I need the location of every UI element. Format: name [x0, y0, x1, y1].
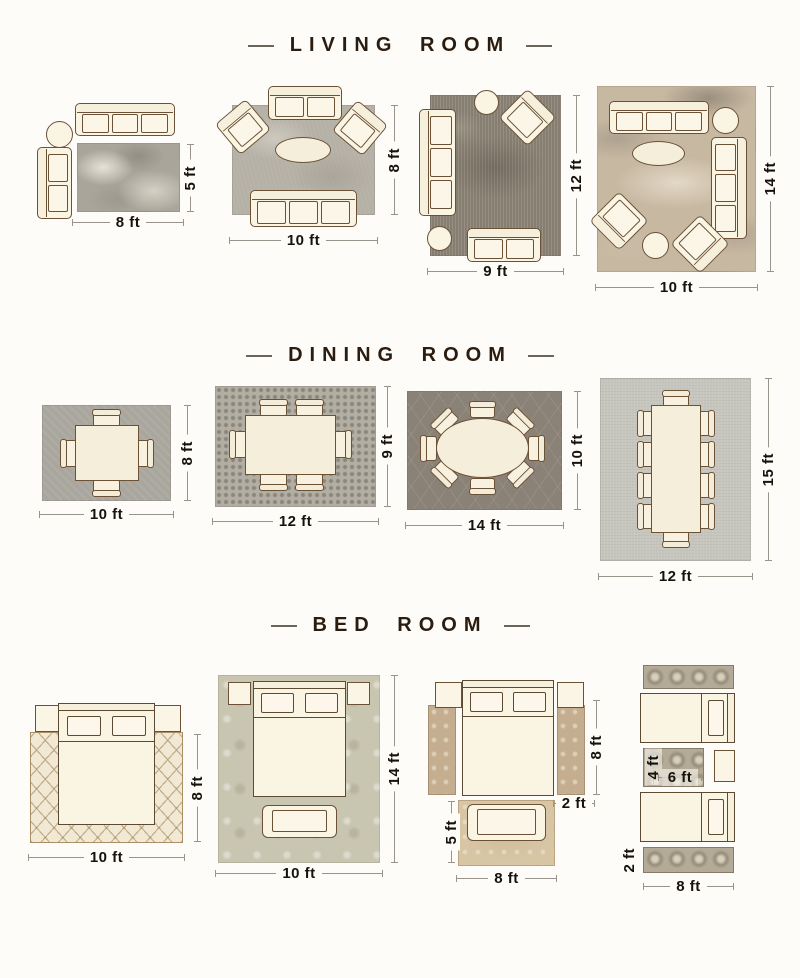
bed: [58, 703, 155, 825]
bed-room-layout-4: 4 ft 6 ft 2 ft 8 ft: [618, 656, 783, 904]
section-title-text: BED ROOM: [313, 614, 488, 637]
sofa: [419, 109, 456, 216]
runner-height-dimension: 2 ft: [620, 845, 638, 875]
bench: [467, 804, 546, 841]
dining-chair: [93, 479, 120, 495]
rug-height-label: 5 ft: [182, 160, 199, 197]
title-dash: [526, 45, 552, 47]
dining-table: [75, 425, 139, 481]
runner-height-label: 2 ft: [621, 842, 638, 879]
bench: [262, 805, 337, 838]
rug-size-guide: LIVING ROOM 8 ft 5 ft 10 ft 8 ft 9 ft 12…: [0, 0, 800, 978]
rug-width-label: 10 ft: [654, 279, 699, 296]
rug-height-label: 8 ft: [386, 142, 403, 179]
rug-width-dimension: 10 ft: [229, 232, 378, 248]
living-room-layout-4: 10 ft 14 ft: [595, 80, 780, 310]
rug-height-dimension: 14 ft: [761, 86, 779, 272]
rug-height-dimension: 8 ft: [178, 405, 196, 501]
runner-rug: [643, 665, 734, 689]
foot-rug-height-label: 5 ft: [443, 814, 460, 851]
loveseat: [37, 147, 72, 219]
rug-width-dimension: 12 ft: [212, 513, 379, 529]
living-room-layout-1: 8 ft 5 ft: [30, 95, 205, 245]
dining-room-layout-3: 14 ft 10 ft: [405, 385, 580, 535]
rug-height-label: 15 ft: [760, 447, 777, 492]
dining-table: [436, 418, 529, 478]
runner-rug: [643, 847, 734, 873]
sofa: [609, 101, 709, 134]
rug-width-label: 10 ft: [84, 506, 129, 523]
rug-width-label: 8 ft: [110, 214, 147, 231]
dining-room-layout-4: 12 ft 15 ft: [598, 375, 780, 590]
side-table: [427, 226, 452, 251]
title-dash: [504, 625, 530, 627]
twin-bed: [640, 792, 735, 842]
coffee-table: [275, 137, 331, 163]
dining-chair: [470, 403, 495, 418]
dining-chair: [334, 431, 350, 458]
dining-chair: [663, 531, 689, 546]
foot-rug-width-label: 8 ft: [488, 870, 525, 887]
rug-height-label: 12 ft: [568, 153, 585, 198]
section-title-living-room: LIVING ROOM: [0, 34, 800, 57]
bed: [253, 681, 346, 797]
rug-width-label: 12 ft: [653, 568, 698, 585]
nightstand: [347, 682, 370, 705]
rug-width-dimension: 10 ft: [28, 849, 185, 865]
rug-height-label: 10 ft: [569, 428, 586, 473]
rug-height-label: 8 ft: [189, 770, 206, 807]
nightstand: [154, 705, 181, 732]
dining-room-layout-1: 10 ft 8 ft: [35, 398, 200, 523]
side-table: [642, 232, 669, 259]
rug-height-label: 9 ft: [379, 428, 396, 465]
rug-height-label: 14 ft: [762, 156, 779, 201]
sofa: [250, 190, 357, 227]
dining-room-layout-2: 12 ft 9 ft: [210, 382, 390, 532]
bed-room-layout-2: 10 ft 14 ft: [212, 668, 394, 880]
rug-width-dimension: 10 ft: [215, 865, 383, 881]
dining-chair: [470, 478, 495, 493]
dining-chair: [528, 436, 543, 461]
living-room-layout-3: 9 ft 12 ft: [415, 85, 585, 290]
bed-room-layout-1: 10 ft 8 ft: [28, 696, 203, 871]
loveseat: [268, 86, 342, 120]
side-table: [46, 121, 73, 148]
side-table: [712, 107, 739, 134]
runner-rug: [557, 705, 585, 795]
rug-width-label: 14 ft: [462, 517, 507, 534]
runner-width-dimension: 8 ft: [643, 878, 734, 894]
rug-height-dimension: 9 ft: [378, 386, 396, 507]
rug-width-label: 12 ft: [273, 513, 318, 530]
section-title-text: DINING ROOM: [288, 344, 512, 367]
rug-width-label: 10 ft: [84, 849, 129, 866]
title-dash: [246, 355, 272, 357]
rug-height-label: 8 ft: [179, 435, 196, 472]
rug-height-label: 14 ft: [386, 746, 403, 791]
section-title-bed-room: BED ROOM: [0, 614, 800, 637]
side-table: [474, 90, 499, 115]
runner-width-dimension: 2 ft: [553, 795, 595, 811]
pillow: [67, 716, 101, 736]
sofa: [711, 137, 747, 239]
runner-width-label: 8 ft: [670, 878, 707, 895]
pillow: [261, 693, 294, 712]
rug-height-dimension: 15 ft: [759, 378, 777, 561]
rug-height-dimension: 5 ft: [181, 144, 199, 212]
runner-rug: [428, 705, 456, 795]
rug-width-label: 10 ft: [281, 232, 326, 249]
center-rug-width-label: 6 ft: [662, 769, 699, 786]
pillow: [513, 692, 545, 711]
living-room-layout-2: 10 ft 8 ft: [215, 85, 400, 250]
nightstand: [435, 682, 462, 708]
rug-height-dimension: 14 ft: [385, 675, 403, 863]
coffee-table: [632, 141, 685, 166]
rug-width-dimension: 10 ft: [39, 506, 174, 522]
pillow: [305, 693, 338, 712]
rug-width-label: 10 ft: [276, 865, 321, 882]
title-dash: [528, 355, 554, 357]
rug-width-dimension: 8 ft: [72, 214, 184, 230]
title-dash: [248, 45, 274, 47]
dining-chair: [422, 436, 437, 461]
title-dash: [271, 625, 297, 627]
rug-width-dimension: 10 ft: [595, 279, 758, 295]
dining-chair: [260, 473, 287, 489]
rug-width-dimension: 14 ft: [405, 517, 564, 533]
section-title-dining-room: DINING ROOM: [0, 344, 800, 367]
dining-table: [245, 415, 336, 475]
twin-bed: [640, 693, 735, 743]
rug-width-label: 9 ft: [477, 263, 514, 280]
nightstand: [714, 750, 735, 782]
rug-height-dimension: 10 ft: [568, 391, 586, 510]
area-rug: [77, 143, 180, 212]
runner-height-dimension: 8 ft: [587, 700, 605, 795]
sofa: [75, 103, 175, 136]
bed: [462, 680, 554, 796]
pillow: [112, 716, 146, 736]
section-title-text: LIVING ROOM: [290, 34, 510, 57]
center-rug-width-dimension: 6 ft: [658, 769, 702, 785]
foot-rug-height-dimension: 5 ft: [442, 801, 460, 863]
loveseat: [467, 228, 541, 262]
bed-room-layout-3: 8 ft 2 ft 5 ft 8 ft: [420, 672, 598, 880]
pillow: [708, 799, 724, 836]
rug-height-dimension: 8 ft: [385, 105, 403, 215]
rug-height-dimension: 12 ft: [567, 95, 585, 256]
rug-height-dimension: 8 ft: [188, 734, 206, 842]
pillow: [708, 700, 724, 737]
runner-width-label: 2 ft: [556, 795, 593, 812]
dining-chair: [296, 473, 323, 489]
rug-width-dimension: 12 ft: [598, 568, 753, 584]
nightstand: [228, 682, 251, 705]
foot-rug-width-dimension: 8 ft: [456, 870, 557, 886]
runner-height-label: 8 ft: [588, 729, 605, 766]
rug-width-dimension: 9 ft: [427, 263, 564, 279]
pillow: [470, 692, 502, 711]
nightstand: [557, 682, 584, 708]
dining-table: [651, 405, 701, 533]
